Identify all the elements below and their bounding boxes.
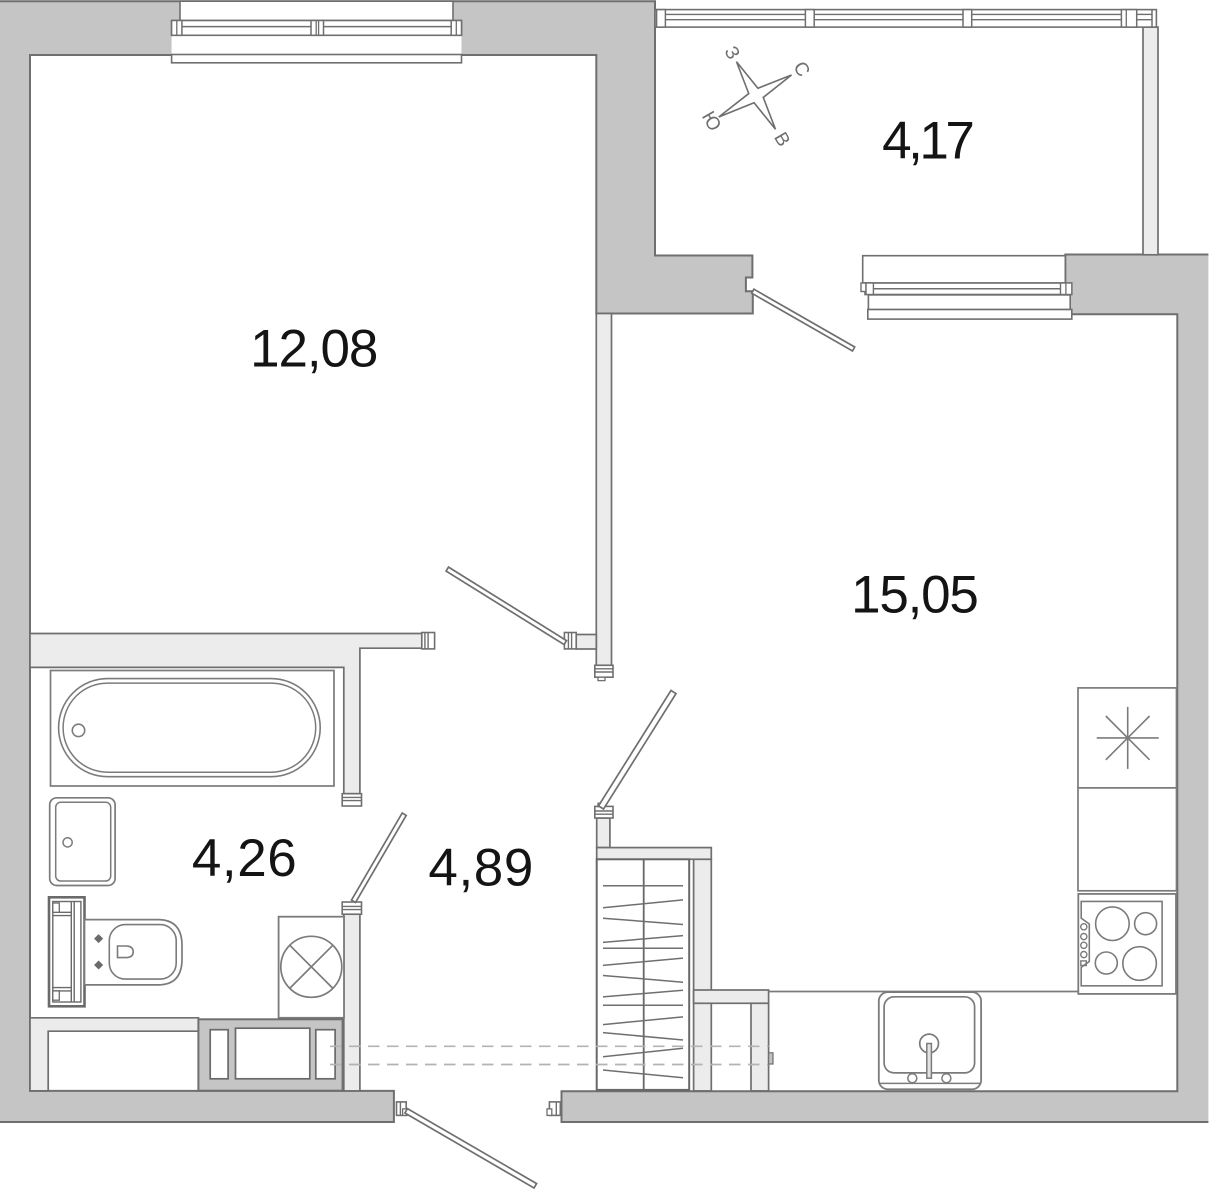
svg-text:4,17: 4,17 <box>882 112 972 171</box>
svg-text:12,08: 12,08 <box>250 320 377 379</box>
svg-text:15,05: 15,05 <box>851 565 977 624</box>
svg-text:4,89: 4,89 <box>428 839 534 898</box>
svg-text:4,26: 4,26 <box>192 829 298 888</box>
